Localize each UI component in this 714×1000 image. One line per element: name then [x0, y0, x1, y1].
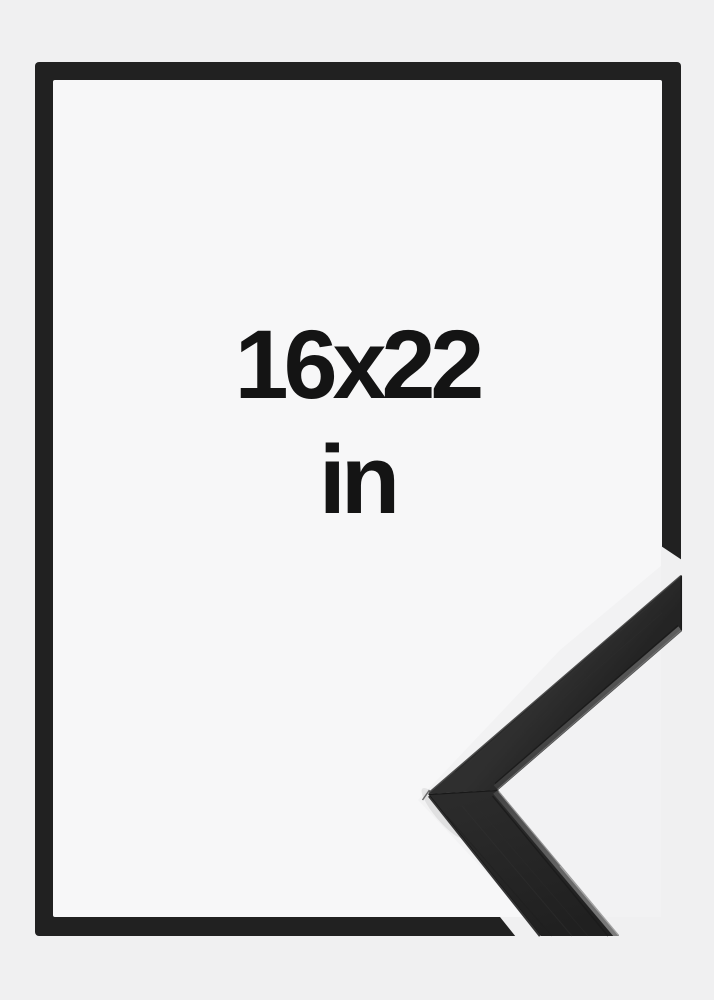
size-text: 16x22 [0, 307, 714, 422]
size-label: 16x22 in [0, 307, 714, 537]
unit-text: in [0, 422, 714, 537]
product-image: 16x22 in [0, 0, 714, 1000]
